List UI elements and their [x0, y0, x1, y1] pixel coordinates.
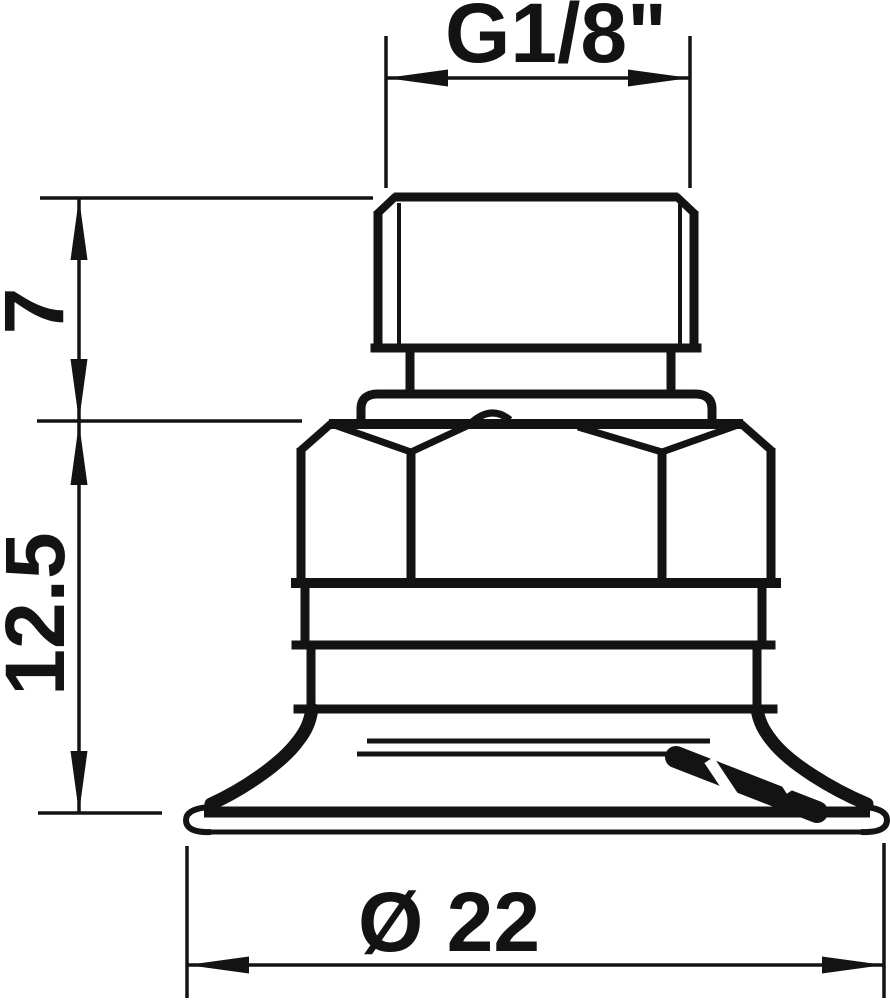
dim-label-fitting-height: 7 [0, 288, 81, 335]
cup-body [296, 583, 773, 709]
hex-nut [296, 413, 776, 584]
part-view [186, 196, 887, 832]
dim-cup-diameter: Ø 22 [187, 843, 884, 998]
dim-label-cup-diameter: Ø 22 [358, 875, 540, 969]
drawing-canvas: G1/8" 7 12.5 Ø 22 [0, 0, 890, 1000]
hex-face-chamfer-mid-right [578, 427, 662, 452]
arrowhead-top [71, 198, 88, 260]
hex-corner-chamfer-right [739, 422, 772, 451]
flare-left-edge [211, 709, 312, 804]
hex-corner-chamfer-left [300, 422, 333, 451]
arrowhead-bottom [71, 751, 88, 813]
dim-cup-height: 12.5 [0, 421, 162, 813]
arrowhead-right [822, 957, 884, 974]
dim-thread-size: G1/8" [386, 0, 690, 188]
arrowhead-top [71, 423, 88, 485]
flange [361, 394, 712, 421]
arrowhead-bottom [71, 359, 88, 421]
dim-label-cup-height: 12.5 [0, 532, 82, 696]
dim-fitting-height: 7 [0, 198, 373, 421]
flange-outline [361, 394, 712, 421]
hex-face-chamfer-mid-left [411, 426, 467, 452]
technical-drawing: G1/8" 7 12.5 Ø 22 [0, 0, 890, 1000]
hex-face-chamfer-right [662, 425, 738, 452]
dimensions: G1/8" 7 12.5 Ø 22 [0, 0, 884, 998]
dim-label-thread-size: G1/8" [445, 0, 667, 80]
hex-face-chamfer-left [334, 425, 411, 452]
cup-rim [186, 807, 887, 832]
arrowhead-left [187, 957, 249, 974]
arrowhead-left [386, 70, 448, 87]
neck [410, 350, 671, 394]
thread-stud [375, 196, 697, 350]
